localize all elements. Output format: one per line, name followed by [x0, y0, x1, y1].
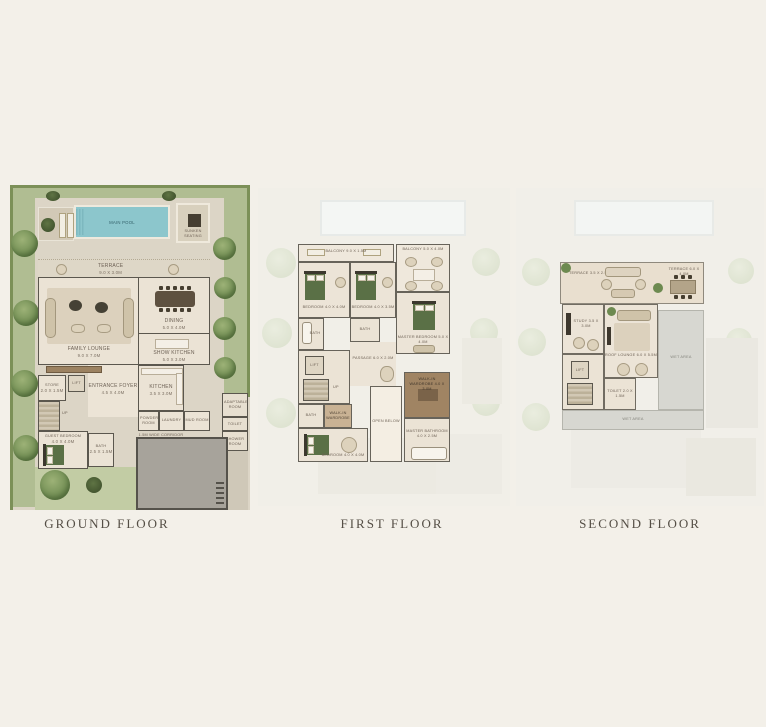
- outdoor-chair-icon: [601, 279, 612, 290]
- ghost-tree-icon: [262, 318, 292, 348]
- bed-icon: [412, 301, 436, 333]
- outdoor-chair-icon: [405, 281, 417, 291]
- rug-icon: [47, 288, 131, 344]
- master-bathroom: MASTER BATHROOM 4.0 x 2.5M: [404, 418, 450, 462]
- plant-icon: [561, 263, 571, 273]
- family-lounge-room: FAMILY LOUNGE9.0 x 7.0M: [38, 277, 140, 365]
- shrub-icon: [86, 477, 102, 493]
- bed-icon: [304, 271, 326, 303]
- outdoor-chair-icon: [635, 279, 646, 290]
- chair-icon: [617, 363, 630, 376]
- bath-2: BATH: [350, 318, 380, 342]
- wet-area-bottom-label: WET AREA: [563, 417, 703, 422]
- sun-lounger-icon: [363, 249, 381, 256]
- bedroom-2-label: BEDROOM 4.0 x 3.5M: [351, 305, 395, 310]
- ghost-pool: [320, 200, 466, 236]
- outdoor-bench-icon: [611, 289, 635, 298]
- outdoor-table-icon: [413, 269, 435, 281]
- walk-in-wardrobe-small-label: WALK-IN WARDROBE: [326, 411, 350, 421]
- ottoman-icon: [71, 324, 85, 333]
- tree-icon: [11, 230, 38, 257]
- first-floor-caption: FIRST FLOOR: [292, 516, 492, 532]
- console-icon: [46, 366, 102, 373]
- ghost-tree-icon: [266, 248, 296, 278]
- kitchen-counter-icon: [176, 373, 183, 405]
- toilet-label: TOILET 2.0 x 1.5M: [605, 389, 635, 399]
- roof-lounge: ROOF LOUNGE 6.0 x 5.5M: [604, 304, 658, 378]
- lift-label: LIFT: [572, 368, 588, 373]
- sunken-seating: SUNKEN SEATING: [176, 203, 210, 243]
- wet-area-right-label: WET AREA: [659, 355, 703, 360]
- outdoor-chair-icon: [431, 257, 443, 267]
- driveway: [228, 451, 248, 510]
- stairs: [567, 383, 593, 405]
- planter-icon: [168, 264, 179, 275]
- adaptable-room-label: ADAPTABLE ROOM: [224, 400, 246, 410]
- toilet-room: TOILET: [222, 417, 248, 431]
- outdoor-chair-icon: [431, 281, 443, 291]
- outdoor-dining-table-icon: [669, 275, 697, 299]
- ghost-tree-icon: [522, 403, 550, 431]
- outdoor-chair-icon: [405, 257, 417, 267]
- first-floor-plan[interactable]: BALCONY 9.0 x 1.5M BALCONY 5.0 x 4.0M BE…: [258, 188, 510, 506]
- stairs: [303, 379, 329, 401]
- master-bedroom: MASTER BEDROOM 5.0 x 4.0M: [396, 292, 450, 354]
- open-below-label: OPEN BELOW: [371, 419, 401, 424]
- master-bedroom-label: MASTER BEDROOM 5.0 x 4.0M: [397, 335, 449, 345]
- study: STUDY 3.5 x 3.0M: [562, 304, 604, 354]
- main-pool: MAIN POOL: [74, 205, 170, 239]
- master-bathroom-label: MASTER BATHROOM 4.0 x 2.5M: [406, 429, 448, 439]
- sofa-icon: [617, 310, 651, 321]
- sofa-icon: [123, 298, 134, 338]
- sun-lounger-icon: [59, 213, 66, 238]
- ghost-tree-icon: [518, 328, 546, 356]
- bedroom-3: BEDROOM 4.0 x 4.0M: [298, 428, 368, 462]
- chair-icon: [573, 337, 585, 349]
- show-kitchen-room: SHOW KITCHEN5.0 x 3.0M: [138, 333, 210, 365]
- stair-core: LIFT: [562, 354, 604, 410]
- terrace-label: TERRACE9.0 x 3.0M: [98, 263, 123, 276]
- bathtub-icon: [302, 322, 312, 344]
- passage-label: PASSAGE 6.0 x 2.0M: [350, 356, 396, 361]
- sunken-seating-label: SUNKEN SEATING: [178, 229, 208, 239]
- terrace-band: TERRACE 3.5 x 2.5M TERRACE 6.0 x 4.0M: [560, 262, 704, 304]
- kitchen-room: KITCHEN3.5 x 3.0M: [138, 365, 184, 411]
- garage-gate-icon: [216, 482, 224, 504]
- planter-icon: [56, 264, 67, 275]
- plant-icon: [41, 218, 55, 232]
- second-floor-caption: SECOND FLOOR: [540, 516, 740, 532]
- tree-icon: [40, 470, 70, 500]
- bedroom-1-label: BEDROOM 4.0 x 4.0M: [299, 305, 349, 310]
- bath-2-label: BATH: [351, 327, 379, 332]
- lift-room: LIFT: [571, 361, 589, 379]
- bedroom-1: BEDROOM 4.0 x 4.0M: [298, 262, 350, 318]
- round-chair-icon: [341, 437, 357, 453]
- family-lounge-label: FAMILY LOUNGE9.0 x 7.0M: [39, 346, 139, 359]
- toilet-room: TOILET 2.0 x 1.5M: [604, 378, 636, 410]
- show-kitchen-label: SHOW KITCHEN5.0 x 3.0M: [139, 350, 209, 363]
- chair-icon: [635, 363, 648, 376]
- guest-bath-label: BATH2.5 x 1.5M: [89, 444, 113, 455]
- kitchen-island-icon: [155, 339, 189, 349]
- garage: [136, 437, 228, 510]
- bed-icon: [355, 271, 377, 303]
- passage: PASSAGE 6.0 x 2.0M: [350, 342, 396, 386]
- armchair-icon: [69, 300, 82, 311]
- laundry-room: LAUNDRY: [159, 411, 184, 431]
- ghost-roof: [686, 438, 756, 496]
- tv-console-icon: [607, 327, 611, 345]
- sun-lounger-icon: [307, 249, 325, 256]
- open-below: OPEN BELOW: [370, 386, 402, 462]
- pool-label: MAIN POOL: [76, 220, 168, 226]
- guest-bedroom: GUEST BEDROOM4.0 x 4.0M: [38, 431, 88, 469]
- lift-label: LIFT: [69, 381, 84, 386]
- plant-icon: [653, 283, 663, 293]
- armchair-icon: [95, 302, 108, 313]
- toilet-label: TOILET: [223, 422, 247, 427]
- entrance-foyer-label: ENTRANCE FOYER4.5 x 4.0M: [88, 383, 138, 396]
- dining-table-icon: [153, 286, 197, 316]
- bed-icon: [43, 444, 69, 466]
- ghost-deck: [462, 338, 502, 404]
- second-floor-plan[interactable]: TERRACE 3.5 x 2.5M TERRACE 6.0 x 4.0M ST…: [516, 188, 764, 506]
- ground-floor-plan[interactable]: MAIN POOL SUNKEN SEATING TERRACE9.0 x 3.…: [10, 185, 250, 510]
- ghost-roof: [571, 428, 701, 488]
- tree-icon: [11, 370, 38, 397]
- ghost-tree-icon: [728, 258, 754, 284]
- bedroom-2: BEDROOM 4.0 x 3.5M: [350, 262, 396, 318]
- wet-area-right: WET AREA: [658, 310, 704, 410]
- sofa-icon: [45, 298, 56, 338]
- tree-icon: [13, 300, 39, 326]
- chair-icon: [335, 277, 346, 288]
- mud-room: MUD ROOM: [184, 411, 210, 431]
- ottoman-icon: [97, 324, 111, 333]
- ghost-tree-icon: [522, 258, 550, 286]
- lift-room: LIFT: [68, 375, 85, 392]
- outdoor-sofa-icon: [605, 267, 641, 277]
- adaptable-room: ADAPTABLE ROOM: [222, 393, 248, 417]
- plant-icon: [607, 307, 616, 316]
- terrace: TERRACE9.0 x 3.0M: [38, 259, 210, 277]
- bed-icon: [304, 434, 332, 456]
- bath-1: BATH: [298, 318, 324, 350]
- tree-icon: [213, 237, 236, 260]
- stairs: [38, 401, 60, 431]
- tree-icon: [214, 357, 236, 379]
- up-label: UP: [333, 385, 339, 390]
- wardrobe-island-icon: [418, 389, 438, 401]
- laundry-label: LAUNDRY: [160, 418, 183, 423]
- pool-steps: [76, 209, 85, 235]
- mud-room-label: MUD ROOM: [185, 418, 209, 423]
- sun-lounger-icon: [67, 213, 74, 238]
- rug-icon: [614, 323, 650, 351]
- chair-icon: [382, 277, 393, 288]
- roof-lounge-label: ROOF LOUNGE 6.0 x 5.5M: [605, 353, 657, 358]
- store-label: STORE2.0 x 1.5M: [39, 383, 65, 394]
- ghost-tree-icon: [472, 248, 500, 276]
- store-room: STORE2.0 x 1.5M: [38, 375, 66, 401]
- powder-room: POWDER ROOM: [138, 411, 159, 431]
- chair-icon: [587, 339, 599, 351]
- ghost-roof: [706, 338, 758, 428]
- bench-icon: [413, 345, 435, 353]
- lift-label: LIFT: [306, 363, 323, 368]
- sunken-firepit-icon: [188, 214, 201, 227]
- hedge-right: [247, 185, 250, 397]
- palm-icon: [162, 191, 176, 201]
- bathtub-icon: [411, 447, 447, 460]
- dining-room: DINING5.0 x 4.0M: [138, 277, 210, 335]
- wet-area-bottom: WET AREA: [562, 410, 704, 430]
- walk-in-wardrobe-small: WALK-IN WARDROBE: [324, 404, 352, 428]
- master-wardrobe: WALK-IN WARDROBE 4.0 x 3.0M: [404, 372, 450, 418]
- powder-room-label: POWDER ROOM: [140, 416, 157, 426]
- desk-icon: [566, 313, 571, 335]
- chaise-icon: [380, 366, 394, 382]
- palm-icon: [46, 191, 60, 201]
- stair-core: LIFT UP: [298, 350, 350, 404]
- bath-3: BATH: [298, 404, 324, 428]
- tree-icon: [213, 317, 236, 340]
- lounger-pad: [38, 207, 74, 241]
- ground-floor-caption: GROUND FLOOR: [7, 516, 207, 532]
- balcony-left: BALCONY 9.0 x 1.5M: [298, 244, 394, 262]
- ghost-pool: [574, 200, 714, 236]
- tree-icon: [13, 435, 39, 461]
- ghost-tree-icon: [266, 398, 296, 428]
- balcony-right-label: BALCONY 5.0 x 4.0M: [397, 247, 449, 252]
- balcony-right: BALCONY 5.0 x 4.0M: [396, 244, 450, 292]
- lift-room: LIFT: [305, 356, 324, 375]
- bath-3-label: BATH: [299, 413, 323, 418]
- guest-bath: BATH2.5 x 1.5M: [88, 433, 114, 467]
- study-label: STUDY 3.5 x 3.0M: [569, 319, 603, 329]
- dining-label: DINING5.0 x 4.0M: [139, 318, 209, 331]
- tree-icon: [214, 277, 236, 299]
- terrace-left-label: TERRACE 3.5 x 2.5M: [569, 271, 610, 276]
- floorplan-page: { "page": { "background": "#f3f0e9" }, "…: [0, 0, 766, 727]
